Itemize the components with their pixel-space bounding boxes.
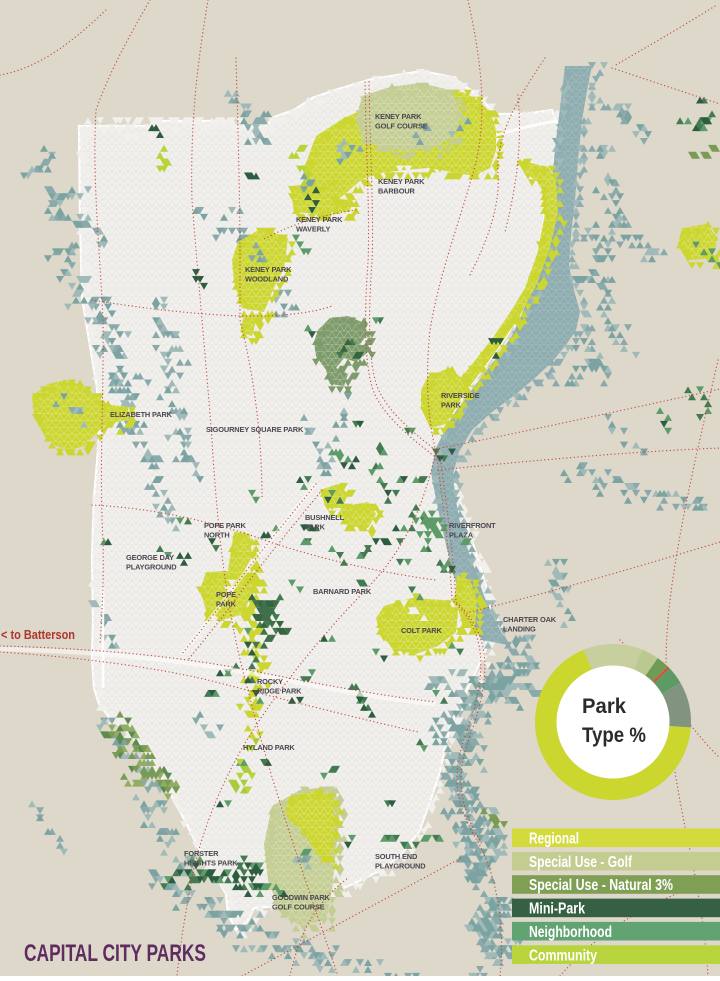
svg-text:Type %: Type % — [582, 723, 646, 747]
svg-text:ELIZABETH PARK: ELIZABETH PARK — [110, 410, 173, 419]
svg-text:HYLAND PARK: HYLAND PARK — [243, 743, 295, 752]
svg-text:Regional: Regional — [529, 831, 579, 848]
svg-text:Park: Park — [582, 694, 626, 718]
svg-text:Community: Community — [529, 947, 597, 964]
svg-text:GOODWIN PARKGOLF COURSE: GOODWIN PARKGOLF COURSE — [272, 893, 330, 912]
svg-text:CAPITAL CITY PARKS: CAPITAL CITY PARKS — [24, 940, 206, 967]
svg-text:Special Use - Natural 3%: Special Use - Natural 3% — [529, 877, 673, 894]
svg-text:Special Use - Golf: Special Use - Golf — [529, 854, 633, 871]
svg-text:COLT PARK: COLT PARK — [401, 626, 442, 635]
svg-text:POPEPARK: POPEPARK — [216, 590, 237, 609]
svg-text:KENEY PARKWOODLAND: KENEY PARKWOODLAND — [245, 265, 292, 284]
svg-text:Mini-Park: Mini-Park — [529, 901, 585, 918]
svg-text:BARNARD PARK: BARNARD PARK — [313, 587, 372, 596]
svg-text:KENEY PARKGOLF COURSE: KENEY PARKGOLF COURSE — [375, 112, 428, 131]
svg-text:SIGOURNEY SQUARE PARK: SIGOURNEY SQUARE PARK — [206, 425, 304, 434]
svg-text:GEORGE DAYPLAYGROUND: GEORGE DAYPLAYGROUND — [126, 553, 177, 572]
svg-text:< to Batterson: < to Batterson — [1, 627, 75, 642]
svg-text:Neighborhood: Neighborhood — [529, 924, 612, 941]
